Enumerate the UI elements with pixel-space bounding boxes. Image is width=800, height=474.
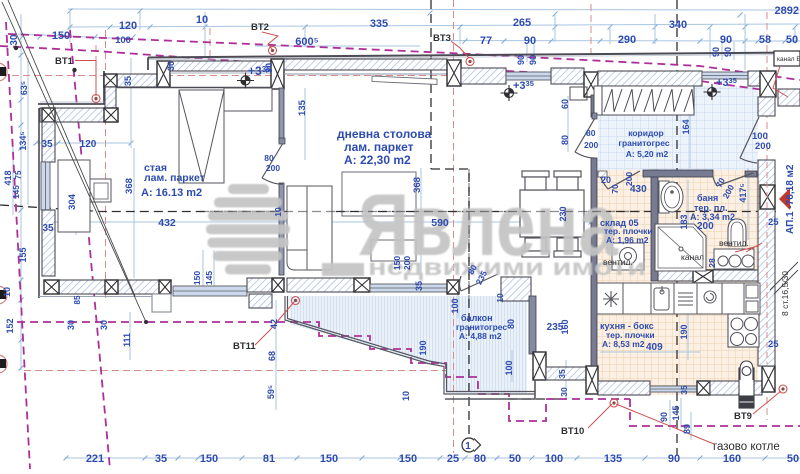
svg-text:BT1: BT1	[55, 56, 74, 67]
svg-text:265: 265	[513, 17, 531, 29]
svg-text:90: 90	[668, 453, 680, 465]
svg-text:409: 409	[646, 342, 663, 353]
svg-text:145: 145	[12, 185, 21, 199]
svg-text:20: 20	[601, 175, 611, 185]
svg-text:8 ст.16,5/30: 8 ст.16,5/30	[780, 271, 790, 316]
svg-text:90: 90	[720, 34, 732, 46]
svg-text:183: 183	[679, 214, 689, 229]
svg-text:35: 35	[414, 281, 424, 291]
svg-text:35: 35	[42, 223, 54, 234]
svg-text:A: 5,20 m2: A: 5,20 m2	[626, 149, 669, 159]
svg-text:50: 50	[786, 34, 798, 46]
svg-text:лам. паркет: лам. паркет	[344, 140, 414, 154]
svg-text:гранитогрес: гранитогрес	[618, 138, 669, 148]
svg-text:28: 28	[707, 258, 717, 268]
svg-text:35: 35	[155, 453, 167, 465]
svg-text:лам. паркет: лам. паркет	[144, 172, 205, 184]
svg-text:10: 10	[495, 293, 505, 303]
svg-text:63⁵: 63⁵	[19, 81, 29, 95]
svg-text:418: 418	[3, 170, 13, 185]
svg-text:BT10: BT10	[561, 426, 584, 437]
svg-text:59⁵: 59⁵	[266, 385, 276, 399]
svg-text:BT9: BT9	[734, 411, 752, 422]
svg-text:70: 70	[610, 184, 620, 194]
svg-text:90: 90	[723, 47, 733, 57]
svg-text:10: 10	[196, 14, 208, 26]
svg-text:68: 68	[267, 351, 277, 361]
svg-text:135: 135	[297, 99, 308, 116]
svg-text:160: 160	[723, 453, 741, 465]
svg-text:90: 90	[524, 35, 536, 47]
svg-text:коридор: коридор	[628, 128, 664, 138]
svg-text:баня: баня	[697, 193, 718, 203]
svg-text:BT11: BT11	[233, 341, 256, 352]
svg-text:35: 35	[557, 369, 567, 379]
svg-text:150: 150	[200, 453, 218, 465]
svg-text:25: 25	[768, 339, 779, 350]
svg-text:30: 30	[66, 320, 76, 330]
svg-text:BT3: BT3	[433, 33, 451, 44]
svg-text:150: 150	[392, 256, 402, 270]
svg-text:368: 368	[124, 178, 135, 194]
svg-text:30: 30	[166, 61, 176, 71]
svg-text:100: 100	[504, 360, 514, 375]
svg-text:50: 50	[509, 453, 521, 465]
svg-text:A: 1,96 m2: A: 1,96 m2	[606, 235, 649, 245]
svg-text:30: 30	[559, 387, 569, 397]
svg-text:вентил.: вентил.	[719, 238, 749, 248]
svg-text:30: 30	[9, 34, 20, 46]
svg-text:25: 25	[447, 453, 459, 465]
svg-text:10: 10	[401, 391, 411, 401]
svg-text:90: 90	[659, 412, 669, 422]
svg-text:164: 164	[681, 119, 691, 134]
svg-text:1: 1	[465, 441, 471, 452]
svg-text:290: 290	[618, 34, 636, 46]
svg-text:145: 145	[204, 271, 214, 285]
svg-text:134⁵: 134⁵	[18, 131, 28, 150]
svg-text:150: 150	[192, 271, 202, 285]
svg-text:100: 100	[545, 453, 563, 465]
svg-text:145: 145	[671, 405, 681, 420]
svg-text:канал: канал	[681, 252, 704, 262]
svg-text:152: 152	[5, 318, 15, 333]
svg-text:2892: 2892	[775, 5, 799, 17]
svg-text:10: 10	[273, 207, 283, 217]
svg-text:50: 50	[787, 453, 799, 465]
svg-text:90: 90	[528, 55, 538, 65]
svg-text:155: 155	[18, 247, 28, 262]
svg-text:35: 35	[123, 76, 133, 86]
svg-text:58: 58	[759, 34, 771, 46]
svg-text:АП.1 -76,18 м2: АП.1 -76,18 м2	[785, 164, 796, 234]
svg-text:81: 81	[263, 453, 275, 465]
svg-text:90: 90	[516, 55, 526, 65]
svg-text:89: 89	[682, 424, 692, 434]
svg-text:417⁵: 417⁵	[738, 183, 748, 202]
svg-text:335: 335	[370, 18, 388, 30]
svg-text:75: 75	[14, 170, 23, 179]
svg-text:42: 42	[269, 319, 279, 329]
svg-text:газово котле: газово котле	[713, 441, 780, 453]
svg-text:25: 25	[768, 217, 779, 228]
svg-text:A: 22,30 m2: A: 22,30 m2	[344, 153, 411, 167]
svg-text:150: 150	[52, 30, 70, 42]
svg-text:BT2: BT2	[251, 22, 269, 33]
svg-text:80: 80	[506, 319, 516, 329]
svg-text:590: 590	[431, 217, 449, 229]
svg-text:150: 150	[320, 453, 338, 465]
svg-text:190: 190	[679, 324, 689, 339]
svg-text:135: 135	[604, 453, 622, 465]
svg-text:80: 80	[474, 453, 486, 465]
svg-text:60: 60	[560, 99, 570, 109]
svg-text:111: 111	[122, 333, 132, 347]
svg-text:200: 200	[697, 221, 714, 232]
svg-text:80: 80	[560, 135, 570, 145]
svg-text:190: 190	[418, 340, 428, 355]
svg-text:200: 200	[402, 256, 412, 270]
svg-text:430: 430	[630, 184, 647, 195]
svg-text:A: 16.13 m2: A: 16.13 m2	[141, 187, 202, 199]
svg-text:100: 100	[450, 298, 460, 313]
svg-text:160: 160	[560, 319, 570, 334]
svg-text:200: 200	[266, 163, 280, 173]
svg-text:221: 221	[86, 453, 104, 465]
svg-text:304: 304	[67, 193, 78, 210]
svg-text:A: 4,88 m2: A: 4,88 m2	[459, 331, 502, 341]
svg-text:10: 10	[2, 287, 12, 297]
svg-text:A: 8,53 m2: A: 8,53 m2	[602, 339, 645, 349]
svg-text:120: 120	[80, 139, 97, 150]
svg-text:дневна столова: дневна столова	[337, 127, 432, 141]
svg-text:100: 100	[115, 35, 131, 46]
svg-text:30: 30	[264, 63, 274, 73]
svg-text:432: 432	[158, 217, 176, 229]
svg-text:340: 340	[669, 19, 687, 31]
svg-text:120: 120	[119, 20, 137, 32]
svg-text:77: 77	[480, 35, 492, 47]
svg-text:80: 80	[586, 128, 596, 138]
svg-text:200: 200	[584, 140, 598, 150]
svg-text:600⁵: 600⁵	[295, 36, 319, 48]
svg-text:200: 200	[755, 141, 771, 152]
svg-text:230: 230	[558, 206, 568, 221]
svg-text:90: 90	[711, 47, 721, 57]
svg-text:368: 368	[412, 177, 423, 193]
svg-text:150: 150	[399, 453, 417, 465]
svg-text:35: 35	[679, 385, 689, 395]
svg-text:35: 35	[41, 139, 53, 150]
svg-text:30: 30	[99, 320, 109, 330]
svg-text:85: 85	[73, 295, 82, 304]
svg-text:80: 80	[264, 153, 274, 163]
svg-text:канал Б: канал Б	[777, 56, 800, 63]
svg-text:вентил.: вентил.	[603, 257, 633, 267]
